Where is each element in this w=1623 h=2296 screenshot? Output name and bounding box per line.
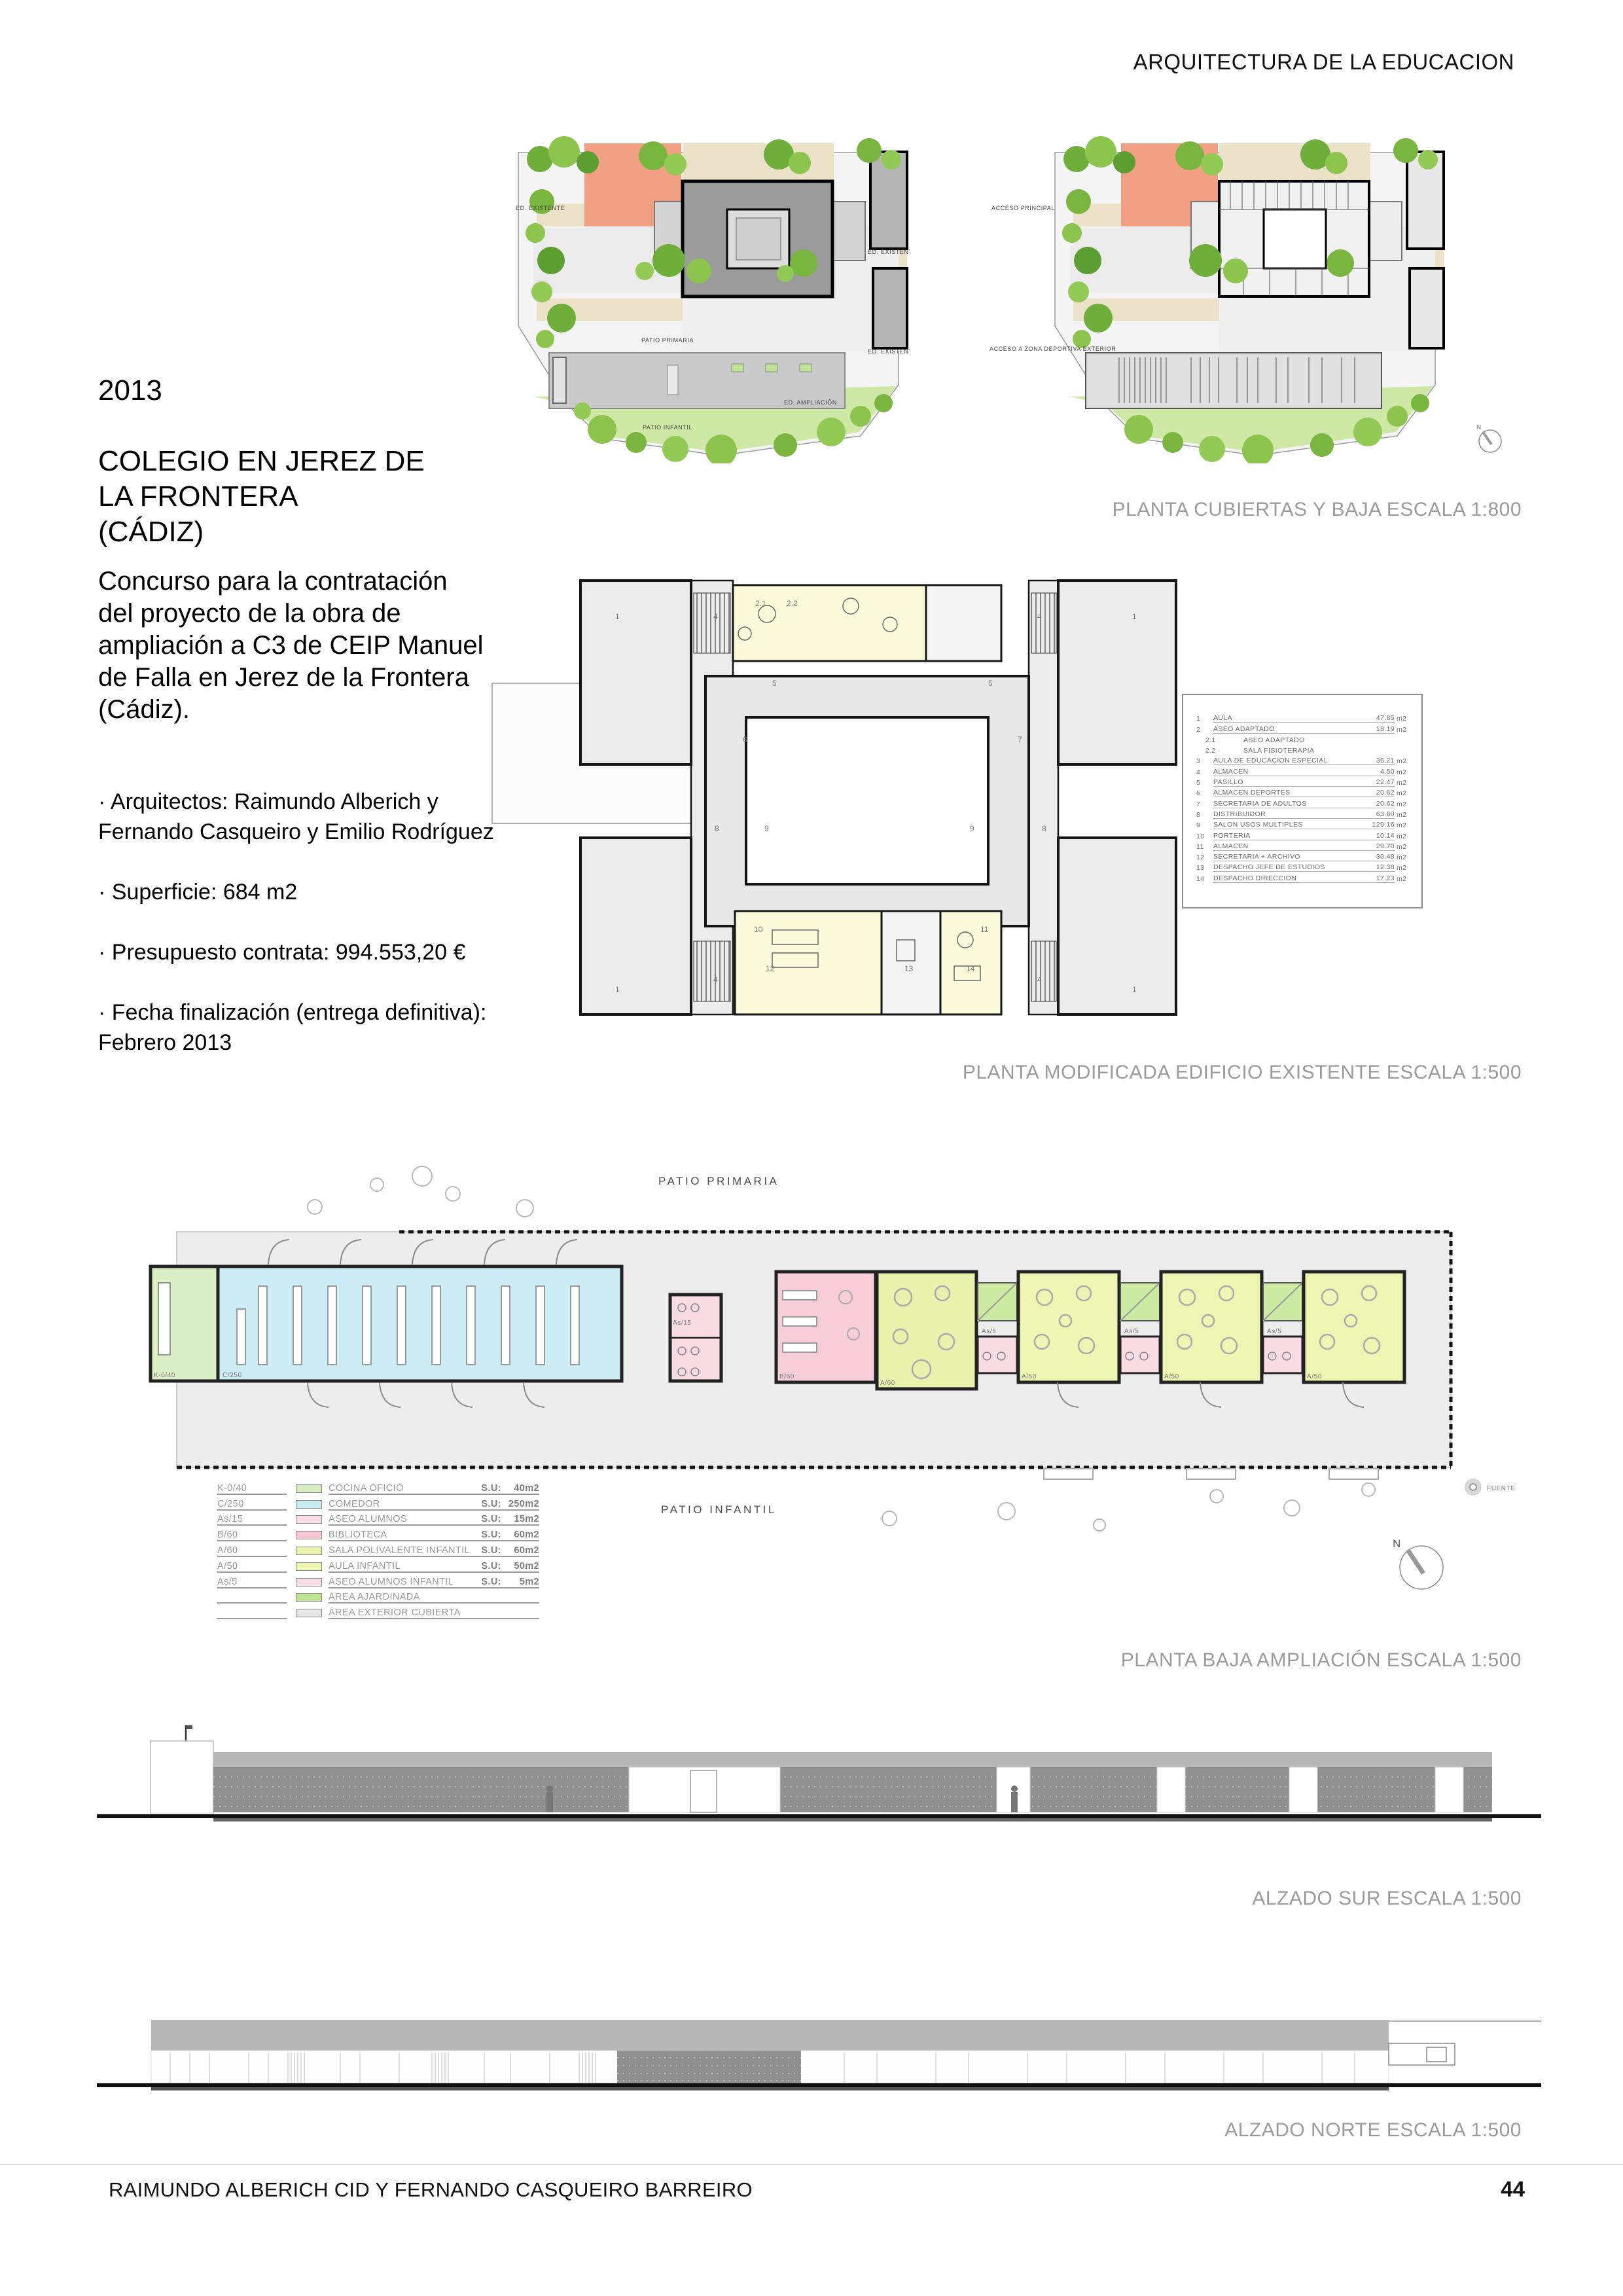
project-year: 2013	[98, 373, 504, 408]
extension-legend: K-0/40COCINA OFICIOS.U:40m2 C/250COMEDOR…	[217, 1479, 539, 1619]
caption-site: PLANTA CUBIERTAS Y BAJA ESCALA 1:800	[1112, 499, 1522, 521]
svg-text:13: 13	[904, 964, 914, 973]
svg-text:4: 4	[1037, 612, 1042, 621]
patio-infantil-label: PATIO INFANTIL	[661, 1503, 777, 1516]
svg-text:4: 4	[1037, 975, 1042, 984]
legend-row: ÁREA EXTERIOR CUBIERTA	[217, 1604, 539, 1619]
legend-row: As/15ASEO ALUMNOSS.U:15m2	[217, 1511, 539, 1526]
table-row: 13DESPACHO JEFE DE ESTUDIOS12.38m2	[1196, 861, 1412, 872]
svg-text:5: 5	[772, 679, 777, 688]
table-row: 7SECRETARIA DE ADULTOS20.62m2	[1196, 797, 1412, 808]
legend-row: ÁREA AJARDINADA	[217, 1588, 539, 1604]
site-plan-ground: ACCESO PRINCIPAL ACCESO A ZONA DEPORTIVA…	[988, 123, 1525, 463]
svg-text:C/250: C/250	[223, 1372, 242, 1379]
table-row: 5PASILLO22.47m2	[1196, 776, 1412, 787]
annex	[1389, 2043, 1455, 2065]
svg-text:ACCESO A ZONA DEPORTIVA EXTERI: ACCESO A ZONA DEPORTIVA EXTERIOR	[990, 346, 1116, 352]
svg-text:1: 1	[615, 612, 620, 621]
table-row: 2.1ASEO ADAPTADO	[1196, 734, 1412, 744]
svg-text:N: N	[1393, 1537, 1400, 1550]
svg-text:8: 8	[715, 824, 719, 833]
south-elevation-drawing	[92, 1715, 1551, 1833]
ground-shadow	[151, 2087, 1389, 2090]
svg-text:4: 4	[713, 975, 718, 984]
svg-text:ED. EXISTENTE: ED. EXISTENTE	[516, 205, 565, 211]
trees-outline-bottom	[882, 1483, 1375, 1531]
detail-architects: · Arquitectos: Raimundo Alberich y Ferna…	[98, 787, 517, 847]
ground-shadow	[213, 1818, 1492, 1821]
color-swatch	[296, 1531, 322, 1539]
existing-building-roof	[654, 181, 865, 296]
svg-text:4: 4	[713, 612, 718, 621]
site-plan-roofs: ED. EXISTENTE ED. EXISTENTE ED. EXISTENT…	[504, 123, 910, 463]
ground-line	[97, 2083, 1541, 2087]
svg-text:A/50: A/50	[1164, 1373, 1179, 1380]
svg-text:As/5: As/5	[1124, 1328, 1139, 1335]
svg-text:1: 1	[1132, 612, 1137, 621]
svg-text:A/60: A/60	[880, 1380, 895, 1387]
legend-row: A/50AULA INFANTILS.U:50m2	[217, 1557, 539, 1573]
svg-text:ED. EXISTENTE: ED. EXISTENTE	[868, 249, 910, 255]
caption-north: ALZADO NORTE ESCALA 1:500	[1224, 2119, 1522, 2142]
detail-budget: · Presupuesto contrata: 994.553,20 €	[98, 937, 517, 967]
svg-text:12: 12	[766, 964, 775, 973]
svg-text:N: N	[1476, 424, 1482, 431]
detail-surface: · Superficie: 684 m2	[98, 877, 517, 907]
svg-text:As/5: As/5	[982, 1328, 996, 1335]
svg-text:1: 1	[615, 985, 620, 994]
table-row: 6ALMACEN DEPORTES20.62m2	[1196, 787, 1412, 797]
svg-text:5: 5	[988, 679, 993, 688]
fountain: FUENTE	[1465, 1479, 1516, 1496]
legend-row: As/5ASEO ALUMNOS INFANTILS.U:5m2	[217, 1573, 539, 1588]
svg-text:1: 1	[1132, 985, 1137, 994]
svg-text:9: 9	[764, 824, 769, 833]
svg-text:A/50: A/50	[1022, 1373, 1037, 1380]
patio-primaria-label: PATIO PRIMARIA	[658, 1175, 779, 1187]
svg-text:2.1: 2.1	[755, 599, 766, 608]
svg-text:2.2: 2.2	[787, 599, 798, 608]
color-swatch	[296, 1515, 322, 1524]
table-row: 4ALMACEN4.50m2	[1196, 765, 1412, 776]
color-swatch	[296, 1500, 322, 1509]
page-number: 44	[1501, 2177, 1525, 2202]
project-year-title: 2013 COLEGIO EN JEREZ DE LA FRONTERA (CÁ…	[98, 338, 504, 585]
upper-band	[213, 1752, 1492, 1767]
svg-text:As/5: As/5	[1267, 1328, 1281, 1335]
legend-row: A/60SALA POLIVALENTE INFANTILS.U:60m2	[217, 1541, 539, 1557]
table-row: 2.2SALA FISIOTERAPIA	[1196, 744, 1412, 755]
svg-text:8: 8	[1042, 824, 1046, 833]
svg-text:K-0/40: K-0/40	[154, 1372, 175, 1379]
dark-center-section	[617, 2051, 801, 2083]
person-figure	[1011, 1785, 1018, 1812]
color-swatch	[296, 1562, 322, 1571]
porch-stubs	[1044, 1469, 1378, 1479]
table-row: 14DESPACHO DIRECCION17.23m2	[1196, 872, 1412, 882]
caption-existing: PLANTA MODIFICADA EDIFICIO EXISTENTE ESC…	[963, 1062, 1522, 1084]
svg-text:6: 6	[743, 735, 747, 744]
upper-band	[151, 2020, 1389, 2051]
svg-text:As/15: As/15	[673, 1319, 692, 1327]
project-details: · Arquitectos: Raimundo Alberich y Ferna…	[98, 787, 517, 1088]
table-row: 12SECRETARIA + ARCHIVO30.48m2	[1196, 851, 1412, 861]
library-tables	[783, 1291, 817, 1352]
table-row: 1AULA47.85m2	[1196, 712, 1412, 723]
room-sala-polivalente	[877, 1272, 976, 1389]
project-description: Concurso para la contratación del proyec…	[98, 565, 484, 726]
existing-building-plan	[1191, 181, 1402, 296]
north-elevation-drawing	[92, 1990, 1551, 2094]
extension-strip-plan	[1086, 353, 1382, 408]
svg-text:PATIO PRIMARIA: PATIO PRIMARIA	[641, 337, 694, 344]
detail-date: · Fecha finalización (entrega definitiva…	[98, 997, 517, 1058]
svg-text:10: 10	[754, 925, 763, 934]
svg-text:B/60: B/60	[779, 1373, 794, 1380]
color-swatch	[296, 1484, 322, 1493]
caption-extension: PLANTA BAJA AMPLIACIÓN ESCALA 1:500	[1121, 1649, 1522, 1672]
legend-row: B/60BIBLIOTECAS.U:60m2	[217, 1526, 539, 1541]
room-biblioteca	[776, 1272, 876, 1382]
color-swatch	[296, 1609, 322, 1617]
project-title: COLEGIO EN JEREZ DE LA FRONTERA (CÁDIZ)	[98, 444, 504, 550]
end-block	[151, 1741, 213, 1814]
legend-row: K-0/40COCINA OFICIOS.U:40m2	[217, 1479, 539, 1495]
table-row: 11ALMACEN29.70m2	[1196, 840, 1412, 851]
existing-buildings-east	[1407, 152, 1444, 348]
color-swatch	[296, 1593, 322, 1602]
svg-text:ED. AMPLIACIÓN: ED. AMPLIACIÓN	[784, 399, 837, 406]
svg-text:14: 14	[966, 964, 975, 973]
document-page: ARQUITECTURA DE LA EDUCACION	[0, 0, 1623, 2296]
trees-outline-top	[308, 1166, 533, 1217]
svg-text:FUENTE: FUENTE	[1487, 1485, 1516, 1492]
room-schedule-table: 1AULA47.85m2 2ASEO ADAPTADO18.19m2 2.1AS…	[1182, 694, 1423, 908]
table-row: 8DISTRIBUIDOR63.80m2	[1196, 808, 1412, 819]
svg-text:A/50: A/50	[1307, 1373, 1322, 1380]
footer-authors: RAIMUNDO ALBERICH CID Y FERNANDO CASQUEI…	[109, 2178, 753, 2202]
svg-text:PATIO INFANTIL: PATIO INFANTIL	[643, 424, 692, 431]
svg-text:7: 7	[1018, 735, 1022, 744]
color-swatch	[296, 1578, 322, 1587]
north-arrow: N	[1393, 1537, 1443, 1589]
room-comedor	[218, 1266, 622, 1381]
kitchen-counter	[158, 1283, 170, 1355]
caption-south: ALZADO SUR ESCALA 1:500	[1252, 1888, 1522, 1910]
person-figure	[546, 1785, 553, 1812]
svg-text:ACCESO PRINCIPAL: ACCESO PRINCIPAL	[991, 205, 1055, 211]
svg-text:ED. EXISTENTE: ED. EXISTENTE	[868, 348, 910, 355]
flag-pole	[186, 1725, 192, 1742]
ground-line	[97, 1814, 1541, 1818]
table-row: 10PORTERIA10.14m2	[1196, 829, 1412, 840]
legend-row: C/250COMEDORS.U:250m2	[217, 1495, 539, 1511]
table-row: 9SALON USOS MULTIPLES129.16m2	[1196, 819, 1412, 829]
svg-text:9: 9	[970, 824, 974, 833]
table-row: 2ASEO ADAPTADO18.19m2	[1196, 723, 1412, 733]
footer-divider	[0, 2164, 1623, 2165]
page-header: ARQUITECTURA DE LA EDUCACION	[1133, 50, 1514, 75]
color-swatch	[296, 1547, 322, 1555]
table-row: 3AULA DE EDUCACION ESPECIAL36.21m2	[1196, 755, 1412, 765]
north-arrow: N	[1476, 424, 1501, 452]
svg-text:11: 11	[980, 925, 989, 934]
